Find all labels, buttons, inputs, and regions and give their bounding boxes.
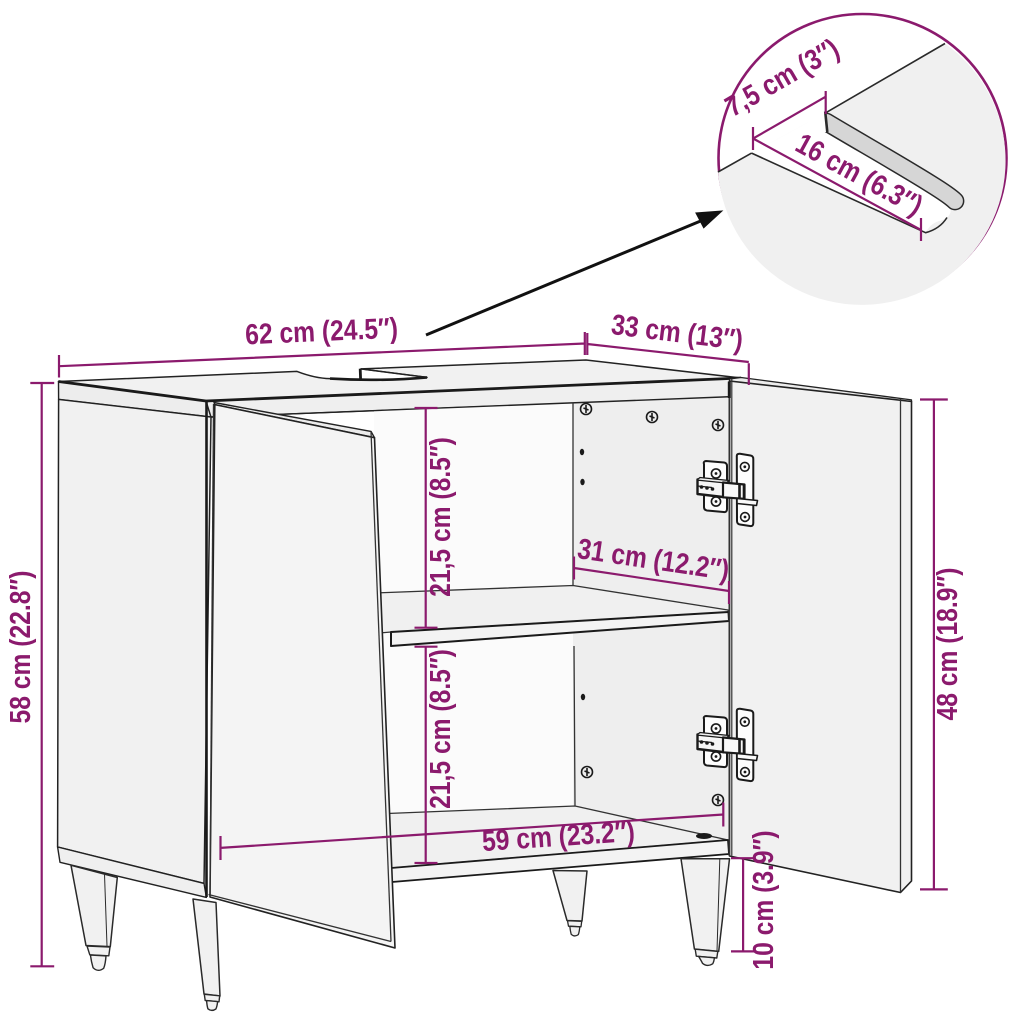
- svg-text:21,5 cm (8.5″): 21,5 cm (8.5″): [424, 649, 456, 809]
- svg-text:58 cm (22.8″): 58 cm (22.8″): [4, 571, 36, 724]
- svg-text:21,5 cm (8.5″): 21,5 cm (8.5″): [424, 437, 456, 597]
- svg-text:10 cm (3.9″): 10 cm (3.9″): [747, 830, 779, 969]
- svg-text:48 cm (18.9″): 48 cm (18.9″): [931, 568, 963, 721]
- svg-text:62 cm (24.5″): 62 cm (24.5″): [244, 312, 398, 351]
